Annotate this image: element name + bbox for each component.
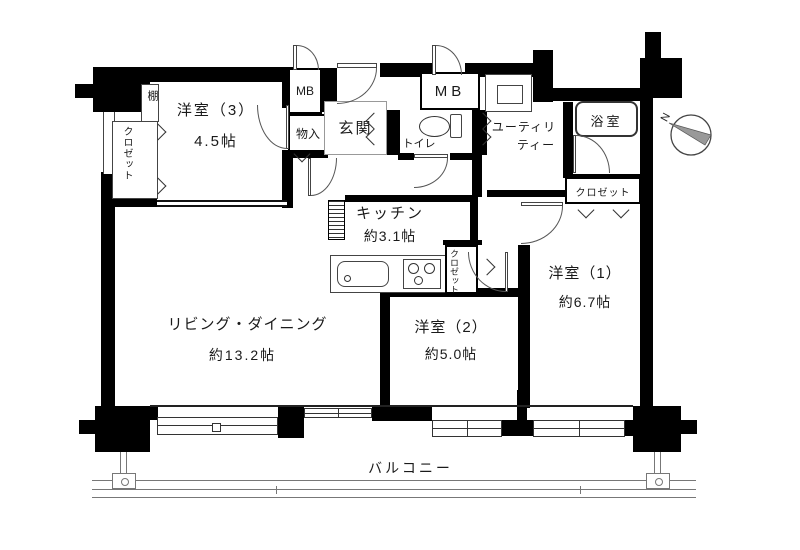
door-swing <box>414 158 448 188</box>
burner-icon <box>408 263 419 274</box>
washer-pan-inner <box>497 85 523 104</box>
faucet-icon <box>344 275 351 282</box>
wall <box>487 190 570 197</box>
wall <box>115 198 157 207</box>
burner-icon <box>414 276 423 285</box>
meter-box-left: MB <box>288 68 322 114</box>
wall <box>550 88 642 101</box>
toilet-bowl-icon <box>419 116 450 137</box>
utility-label-line2: ティー <box>506 136 566 153</box>
balcony-rail-tick <box>580 486 581 494</box>
door-swing <box>576 135 610 173</box>
wall <box>398 153 414 160</box>
compass-north-label: N <box>660 111 673 124</box>
utility-label-line1: ユーティリ <box>486 118 562 135</box>
wall <box>640 98 653 408</box>
floor-plan: 棚 クロゼット MB 物入 玄関 トイレ MB ユーティリ ティー 浴室 <box>0 0 800 550</box>
compass-icon: N <box>660 103 722 165</box>
sink-icon <box>337 261 389 287</box>
sliding-partition <box>157 200 287 207</box>
wall <box>150 405 633 407</box>
wall <box>472 155 482 197</box>
window <box>533 420 625 437</box>
wall <box>380 297 390 407</box>
drain <box>112 473 136 489</box>
storage-monoire: 物入 <box>288 114 328 152</box>
folding-door-mark <box>613 202 630 219</box>
wall <box>502 420 533 436</box>
closet-room1: クロゼット <box>565 177 641 204</box>
burner-icon <box>424 263 435 274</box>
storage-label: 物入 <box>290 125 326 142</box>
toilet-label: トイレ <box>396 135 442 151</box>
closet-room1-label: クロゼット <box>567 184 639 199</box>
stove-icon <box>403 259 441 289</box>
wall <box>645 32 661 58</box>
window-tick <box>467 421 468 436</box>
wall <box>518 245 530 408</box>
living-name: リビング・ダイニング <box>145 313 350 334</box>
drain-hole <box>655 478 663 486</box>
closet-room2-label: クロゼット <box>448 249 461 294</box>
kitchen-size: 約3.1帖 <box>332 226 448 246</box>
wall <box>345 195 478 202</box>
wall <box>79 420 95 434</box>
pillar <box>95 406 150 452</box>
wall <box>148 67 293 82</box>
wall <box>101 172 115 408</box>
room2-size: 約5.0帖 <box>392 344 510 364</box>
pillar <box>633 406 681 452</box>
wall <box>681 420 697 434</box>
door-swing <box>297 45 319 70</box>
room1-size: 約6.7帖 <box>532 292 638 312</box>
window <box>157 417 278 435</box>
wall <box>372 406 432 421</box>
balcony-rail <box>92 480 696 481</box>
room1-name: 洋室（1） <box>532 262 638 283</box>
door-swing <box>337 68 377 104</box>
kitchen-name: キッチン <box>334 202 446 223</box>
meter-box-right: MB <box>420 72 480 110</box>
window-handle <box>212 423 221 432</box>
drain-hole <box>121 478 129 486</box>
balcony-rail <box>92 497 696 498</box>
pillar <box>278 406 304 438</box>
balcony-rail-tick <box>276 486 277 494</box>
room3-size: 4.5帖 <box>150 130 282 151</box>
window <box>432 420 502 437</box>
closet-room3-label: クロゼット <box>119 126 134 181</box>
living-size: 約13.2帖 <box>160 345 325 365</box>
meter-box-right-label: MB <box>422 83 478 100</box>
meter-box-left-label: MB <box>290 84 320 98</box>
room3-name: 洋室（3） <box>150 99 282 120</box>
window-tick <box>338 409 339 417</box>
bath-label: 浴室 <box>577 111 636 130</box>
window <box>304 408 372 418</box>
door-swing <box>311 158 337 196</box>
room2-name: 洋室（2） <box>392 316 510 337</box>
window-tick <box>579 421 580 436</box>
folding-door-mark <box>578 202 595 219</box>
pillar <box>640 58 682 98</box>
bathtub-icon: 浴室 <box>575 101 638 137</box>
door-swing <box>436 45 462 75</box>
balcony-label: バルコニー <box>348 458 473 478</box>
wall <box>625 420 635 436</box>
door-swing <box>521 206 563 244</box>
drain <box>646 473 670 489</box>
balcony-rail <box>92 489 696 490</box>
toilet-tank <box>450 114 462 138</box>
wall <box>75 84 93 98</box>
